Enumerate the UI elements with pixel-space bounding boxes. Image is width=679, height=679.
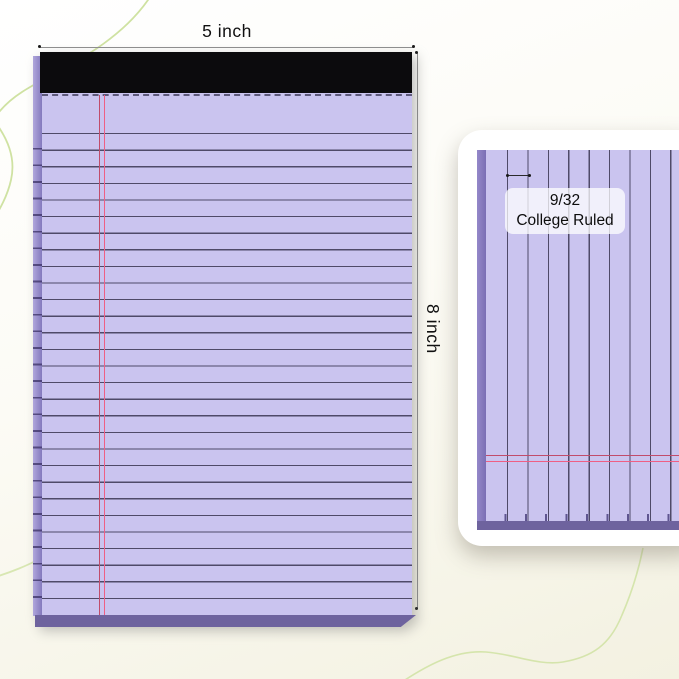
dimension-endpoint-dot: [412, 45, 415, 48]
horizontal-ruled-lines: [42, 133, 412, 614]
width-dimension-label: 5 inch: [40, 21, 414, 42]
perforation-dashed-line: [42, 94, 412, 96]
marker-endpoint-dot: [528, 174, 531, 177]
ruling-spec-label: 9/32 College Ruled: [505, 188, 625, 234]
legal-notepad: [33, 52, 412, 626]
marker-endpoint-dot: [506, 174, 509, 177]
red-margin-line: [99, 95, 105, 615]
notepad-page-stack-edge: [33, 56, 42, 616]
page-edge-hatching: [33, 133, 42, 603]
ruling-type-text: College Ruled: [516, 211, 613, 231]
dimension-endpoint-dot: [38, 45, 41, 48]
notepad-binding-strip: [40, 52, 412, 93]
product-image-canvas: 5 inch 8 inch: [0, 0, 679, 679]
dimension-endpoint-dot: [415, 607, 418, 610]
notepad-paper: [42, 93, 412, 615]
zoomed-page-stack-edge: [477, 150, 486, 530]
ruling-detail-card: 9/32 College Ruled: [458, 130, 679, 546]
dimension-endpoint-dot: [415, 51, 418, 54]
zoomed-bottom-edge: [477, 521, 679, 530]
height-dimension-line: [417, 53, 418, 609]
notepad-bottom-edge: [35, 615, 416, 627]
zoomed-red-margin-line: [486, 455, 679, 462]
line-spacing-marker: [508, 175, 529, 176]
width-dimension-line: [40, 47, 414, 48]
height-dimension-label: 8 inch: [422, 304, 443, 364]
ruling-spacing-text: 9/32: [550, 191, 580, 211]
zoomed-paper-swatch: 9/32 College Ruled: [477, 150, 679, 530]
zoomed-page-edge-hatching: [486, 514, 679, 521]
